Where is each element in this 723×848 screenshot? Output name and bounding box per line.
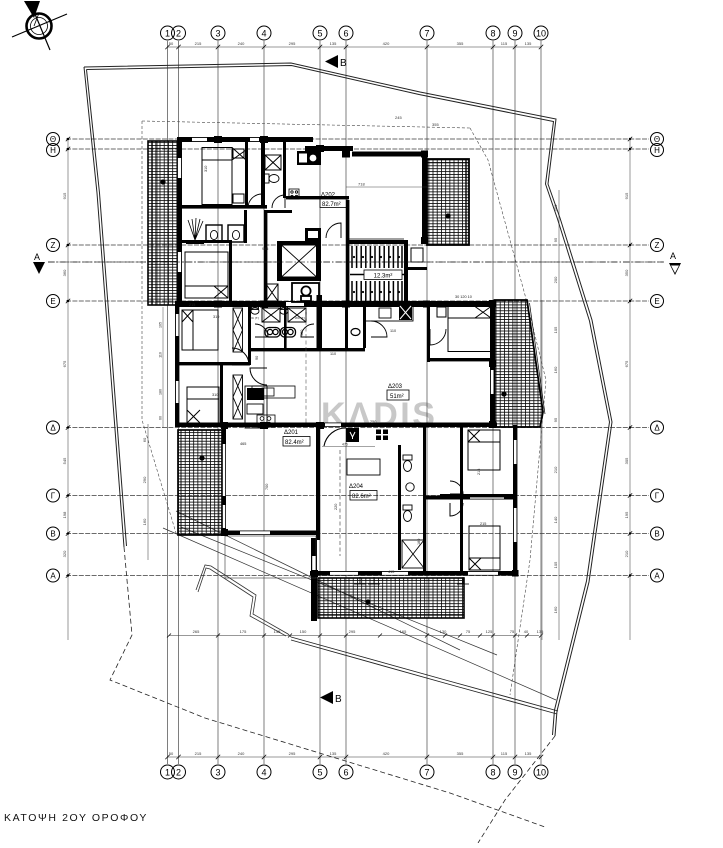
- svg-text:Ε: Ε: [654, 297, 659, 306]
- svg-text:215: 215: [189, 303, 195, 307]
- svg-text:265: 265: [193, 629, 200, 634]
- svg-text:1: 1: [165, 29, 170, 39]
- svg-text:8: 8: [490, 29, 495, 39]
- svg-text:B: B: [340, 58, 347, 69]
- svg-text:Η: Η: [654, 146, 660, 155]
- svg-text:A: A: [670, 251, 676, 261]
- svg-text:ΚΑΤΟΨΗ 2ΟΥ ΟΡΟΦΟΥ: ΚΑΤΟΨΗ 2ΟΥ ΟΡΟΦΟΥ: [4, 812, 148, 824]
- svg-text:40: 40: [524, 629, 529, 634]
- svg-text:175: 175: [240, 629, 247, 634]
- svg-text:310: 310: [204, 166, 208, 172]
- svg-text:700: 700: [265, 484, 269, 490]
- svg-text:Δ203: Δ203: [388, 384, 403, 390]
- svg-text:250: 250: [370, 420, 376, 424]
- svg-text:165: 165: [159, 322, 163, 328]
- svg-text:75: 75: [510, 629, 515, 634]
- svg-text:3: 3: [215, 768, 220, 778]
- svg-text:310: 310: [213, 315, 219, 319]
- svg-text:210: 210: [553, 466, 558, 473]
- svg-text:Α: Α: [50, 572, 56, 581]
- svg-text:215: 215: [195, 751, 202, 756]
- svg-text:WC (T.): WC (T.): [295, 316, 305, 320]
- svg-text:Β: Β: [50, 530, 55, 539]
- svg-text:Θ: Θ: [654, 135, 660, 144]
- svg-text:Γ: Γ: [655, 492, 660, 501]
- svg-text:6: 6: [343, 768, 348, 778]
- svg-text:7: 7: [424, 768, 429, 778]
- svg-text:75: 75: [466, 629, 471, 634]
- svg-text:105: 105: [553, 326, 558, 333]
- svg-text:675: 675: [62, 360, 67, 367]
- svg-text:915: 915: [62, 192, 67, 199]
- svg-text:30 120 10: 30 120 10: [455, 295, 472, 299]
- svg-text:135: 135: [330, 751, 337, 756]
- svg-text:160: 160: [142, 518, 147, 525]
- svg-text:295: 295: [349, 629, 356, 634]
- svg-text:305: 305: [624, 457, 629, 464]
- svg-text:360: 360: [62, 269, 67, 276]
- svg-text:Δ: Δ: [654, 424, 660, 433]
- svg-text:195: 195: [624, 511, 629, 518]
- svg-text:290: 290: [142, 476, 147, 483]
- svg-text:110: 110: [159, 352, 163, 358]
- svg-text:6: 6: [343, 29, 348, 39]
- svg-text:WC (T.): WC (T.): [249, 316, 259, 320]
- svg-text:465: 465: [240, 442, 246, 446]
- svg-text:Δ202: Δ202: [321, 193, 336, 199]
- svg-text:Ζ: Ζ: [51, 241, 56, 250]
- svg-text:180: 180: [417, 539, 421, 545]
- svg-text:82.7m²: 82.7m²: [322, 202, 341, 208]
- svg-text:Α: Α: [654, 572, 660, 581]
- svg-text:9: 9: [512, 768, 517, 778]
- svg-text:115: 115: [501, 41, 508, 46]
- svg-text:718: 718: [358, 182, 365, 187]
- svg-text:Ε: Ε: [50, 297, 55, 306]
- svg-text:105: 105: [553, 561, 558, 568]
- svg-text:320: 320: [62, 550, 67, 557]
- svg-text:355: 355: [432, 122, 439, 127]
- svg-text:215: 215: [480, 522, 486, 526]
- svg-text:210: 210: [624, 550, 629, 557]
- svg-text:140: 140: [553, 516, 558, 523]
- svg-text:355: 355: [457, 41, 464, 46]
- svg-text:200: 200: [553, 276, 558, 283]
- svg-text:675: 675: [624, 360, 629, 367]
- svg-text:135: 135: [525, 751, 532, 756]
- svg-text:Δ201: Δ201: [284, 430, 299, 436]
- svg-text:110: 110: [390, 329, 396, 333]
- svg-text:Θ: Θ: [50, 135, 56, 144]
- svg-text:60: 60: [159, 416, 163, 420]
- svg-text:545: 545: [62, 457, 67, 464]
- svg-text:150: 150: [300, 629, 307, 634]
- svg-text:4: 4: [261, 768, 266, 778]
- svg-text:51m²: 51m²: [390, 394, 404, 400]
- svg-text:135: 135: [537, 629, 544, 634]
- svg-text:Ζ: Ζ: [655, 241, 660, 250]
- svg-text:4: 4: [261, 29, 266, 39]
- svg-text:110: 110: [330, 352, 336, 356]
- svg-text:82.4m²: 82.4m²: [285, 440, 304, 446]
- svg-text:B: B: [335, 694, 342, 705]
- svg-text:90: 90: [255, 356, 259, 360]
- svg-text:1: 1: [165, 768, 170, 778]
- svg-text:5: 5: [317, 29, 322, 39]
- svg-text:Δ204: Δ204: [349, 484, 364, 490]
- svg-text:2: 2: [176, 768, 181, 778]
- svg-text:7: 7: [424, 29, 429, 39]
- svg-text:10: 10: [536, 29, 546, 39]
- svg-text:82.6m²: 82.6m²: [352, 494, 371, 500]
- svg-text:240: 240: [238, 41, 245, 46]
- svg-text:160: 160: [553, 366, 558, 373]
- svg-text:295: 295: [289, 751, 296, 756]
- svg-text:95: 95: [553, 417, 558, 422]
- svg-text:240: 240: [238, 751, 245, 756]
- svg-text:135: 135: [330, 41, 337, 46]
- svg-text:180: 180: [159, 389, 163, 395]
- svg-text:Δ: Δ: [50, 424, 56, 433]
- svg-text:215: 215: [477, 469, 481, 475]
- svg-text:350: 350: [624, 269, 629, 276]
- svg-text:475: 475: [342, 443, 348, 447]
- svg-text:95: 95: [553, 237, 558, 242]
- svg-text:965: 965: [262, 247, 268, 251]
- svg-text:115: 115: [501, 751, 508, 756]
- svg-text:125: 125: [486, 629, 493, 634]
- svg-text:355: 355: [457, 751, 464, 756]
- svg-text:215: 215: [195, 41, 202, 46]
- svg-text:310: 310: [212, 393, 218, 397]
- svg-text:5: 5: [317, 768, 322, 778]
- svg-text:Β: Β: [654, 530, 659, 539]
- svg-text:245: 245: [395, 115, 402, 120]
- svg-text:9: 9: [512, 29, 517, 39]
- svg-text:295: 295: [289, 41, 296, 46]
- svg-text:Γ: Γ: [51, 492, 56, 501]
- svg-text:8: 8: [490, 768, 495, 778]
- svg-text:220: 220: [334, 504, 338, 510]
- svg-text:3: 3: [215, 29, 220, 39]
- svg-text:2: 2: [176, 29, 181, 39]
- svg-text:120: 120: [300, 330, 304, 336]
- svg-text:198: 198: [62, 511, 67, 518]
- svg-text:420: 420: [383, 751, 390, 756]
- svg-text:915: 915: [624, 192, 629, 199]
- svg-text:415: 415: [388, 570, 394, 574]
- svg-text:12.3m²: 12.3m²: [374, 274, 393, 280]
- svg-text:A: A: [34, 252, 40, 262]
- svg-text:60: 60: [142, 437, 147, 442]
- svg-text:KΛDIS: KΛDIS: [321, 396, 437, 434]
- svg-text:160: 160: [553, 606, 558, 613]
- svg-text:420: 420: [383, 41, 390, 46]
- svg-text:10: 10: [536, 768, 546, 778]
- svg-text:135: 135: [525, 41, 532, 46]
- svg-text:Η: Η: [50, 146, 56, 155]
